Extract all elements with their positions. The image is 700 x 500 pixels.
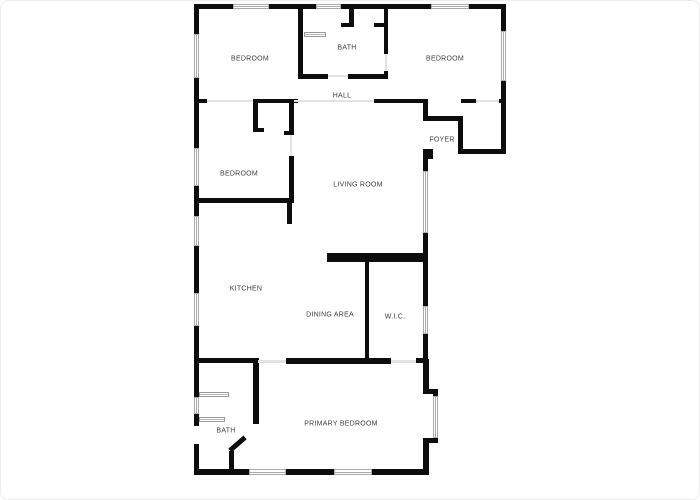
floor-plan: BEDROOMBATHBEDROOMHALLFOYERBEDROOMLIVING… bbox=[1, 1, 700, 500]
room-label-hall: HALL bbox=[333, 93, 352, 100]
wall-segment bbox=[287, 203, 292, 224]
window bbox=[233, 4, 269, 9]
room-label-bath-bottom: BATH bbox=[216, 428, 235, 435]
door-opening bbox=[294, 100, 374, 102]
door-opening bbox=[476, 100, 499, 102]
wall-segment bbox=[284, 131, 294, 135]
door-opening bbox=[391, 360, 416, 363]
wall-segment bbox=[253, 358, 259, 424]
window bbox=[501, 31, 506, 81]
room-label-living-room: LIVING ROOM bbox=[333, 182, 382, 189]
wall-segment bbox=[289, 156, 294, 203]
wall-segment bbox=[384, 71, 388, 79]
wall-segment bbox=[298, 74, 328, 79]
wall-segment bbox=[194, 99, 207, 103]
window bbox=[423, 171, 428, 233]
window bbox=[423, 306, 428, 334]
door-opening bbox=[290, 135, 292, 156]
bath-fixture bbox=[304, 32, 326, 37]
wall-segment bbox=[423, 441, 429, 471]
room-label-wic: W.I.C. bbox=[385, 314, 406, 321]
room-label-kitchen: KITCHEN bbox=[230, 286, 262, 293]
wall-segment bbox=[327, 253, 428, 262]
window bbox=[433, 396, 438, 438]
wall-gap bbox=[194, 426, 199, 444]
window bbox=[194, 148, 199, 186]
wall-segment bbox=[461, 99, 476, 103]
wall-segment bbox=[423, 116, 461, 121]
wall-segment bbox=[384, 9, 388, 54]
wall-segment bbox=[298, 9, 303, 78]
door-opening bbox=[385, 54, 387, 71]
room-label-bath-top: BATH bbox=[337, 45, 356, 52]
window bbox=[249, 469, 286, 475]
room-label-foyer: FOYER bbox=[429, 137, 454, 144]
wall-segment bbox=[229, 451, 234, 473]
door-opening bbox=[328, 75, 348, 77]
room-label-bedroom-top-left: BEDROOM bbox=[231, 56, 269, 63]
wall-segment bbox=[197, 198, 294, 203]
bath-fixture bbox=[199, 417, 225, 422]
door-opening bbox=[258, 360, 286, 363]
window bbox=[431, 4, 469, 9]
window bbox=[194, 216, 199, 246]
door-opening bbox=[207, 100, 253, 102]
wall-segment bbox=[341, 23, 354, 27]
wall-segment bbox=[348, 74, 388, 79]
window bbox=[316, 4, 341, 9]
wall-segment bbox=[458, 149, 506, 154]
wall-segment bbox=[194, 358, 258, 363]
bath-fixture bbox=[199, 392, 229, 397]
window bbox=[194, 34, 199, 78]
wall-segment bbox=[416, 358, 428, 363]
wall-segment bbox=[286, 358, 391, 364]
room-label-primary-bedroom: PRIMARY BEDROOM bbox=[304, 421, 378, 428]
wall-segment bbox=[365, 262, 369, 359]
wall-segment bbox=[253, 128, 264, 132]
room-label-dining-area: DINING AREA bbox=[306, 312, 354, 319]
floorplan-canvas: BEDROOMBATHBEDROOMHALLFOYERBEDROOMLIVING… bbox=[0, 0, 700, 500]
window bbox=[194, 397, 199, 414]
room-label-bedroom-top-right: BEDROOM bbox=[426, 56, 464, 63]
window bbox=[334, 469, 372, 475]
wall-segment bbox=[458, 116, 463, 152]
room-label-bedroom-mid-left: BEDROOM bbox=[220, 171, 258, 178]
wall-diagonal bbox=[228, 435, 246, 452]
wall-segment bbox=[499, 99, 506, 103]
wall-segment bbox=[374, 99, 428, 103]
wall-segment bbox=[423, 359, 429, 392]
window bbox=[194, 293, 199, 326]
